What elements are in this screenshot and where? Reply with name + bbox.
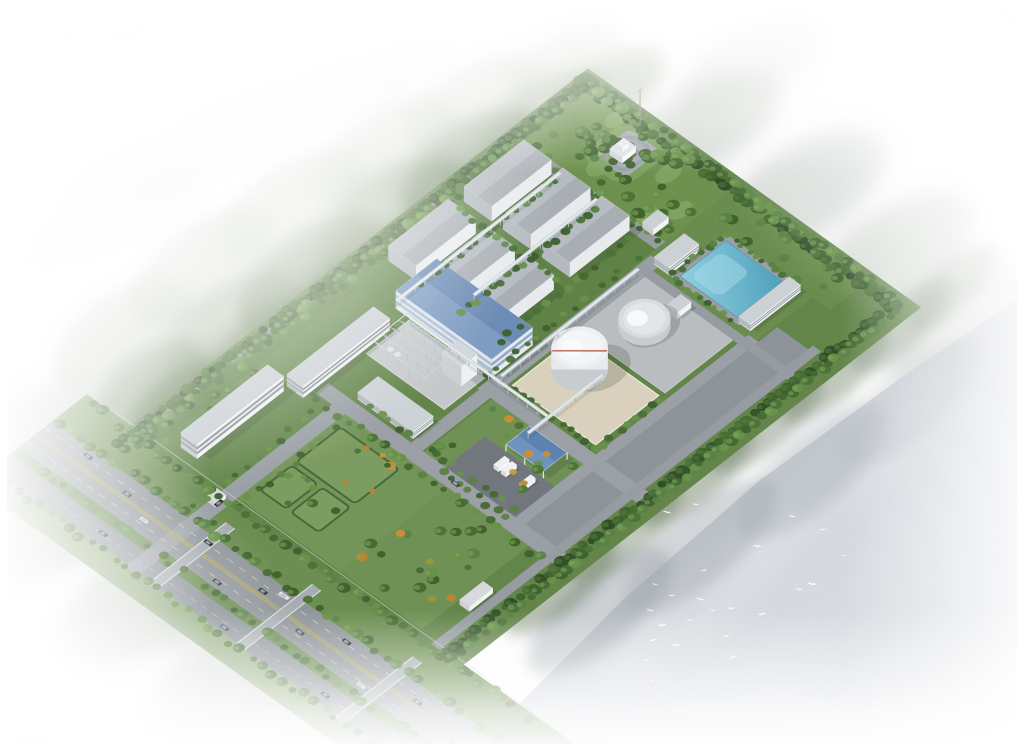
rendering-canvas <box>0 0 1024 755</box>
site-aerial-rendering <box>0 0 1024 755</box>
white-margin <box>0 0 1024 7</box>
haze-fade <box>0 0 580 500</box>
haze-fade <box>0 445 330 755</box>
atmosphere-vignette <box>0 0 1024 755</box>
white-margin <box>0 744 1024 755</box>
white-margin <box>0 0 7 755</box>
haze-fade <box>685 0 1024 350</box>
white-margin <box>1017 0 1024 755</box>
